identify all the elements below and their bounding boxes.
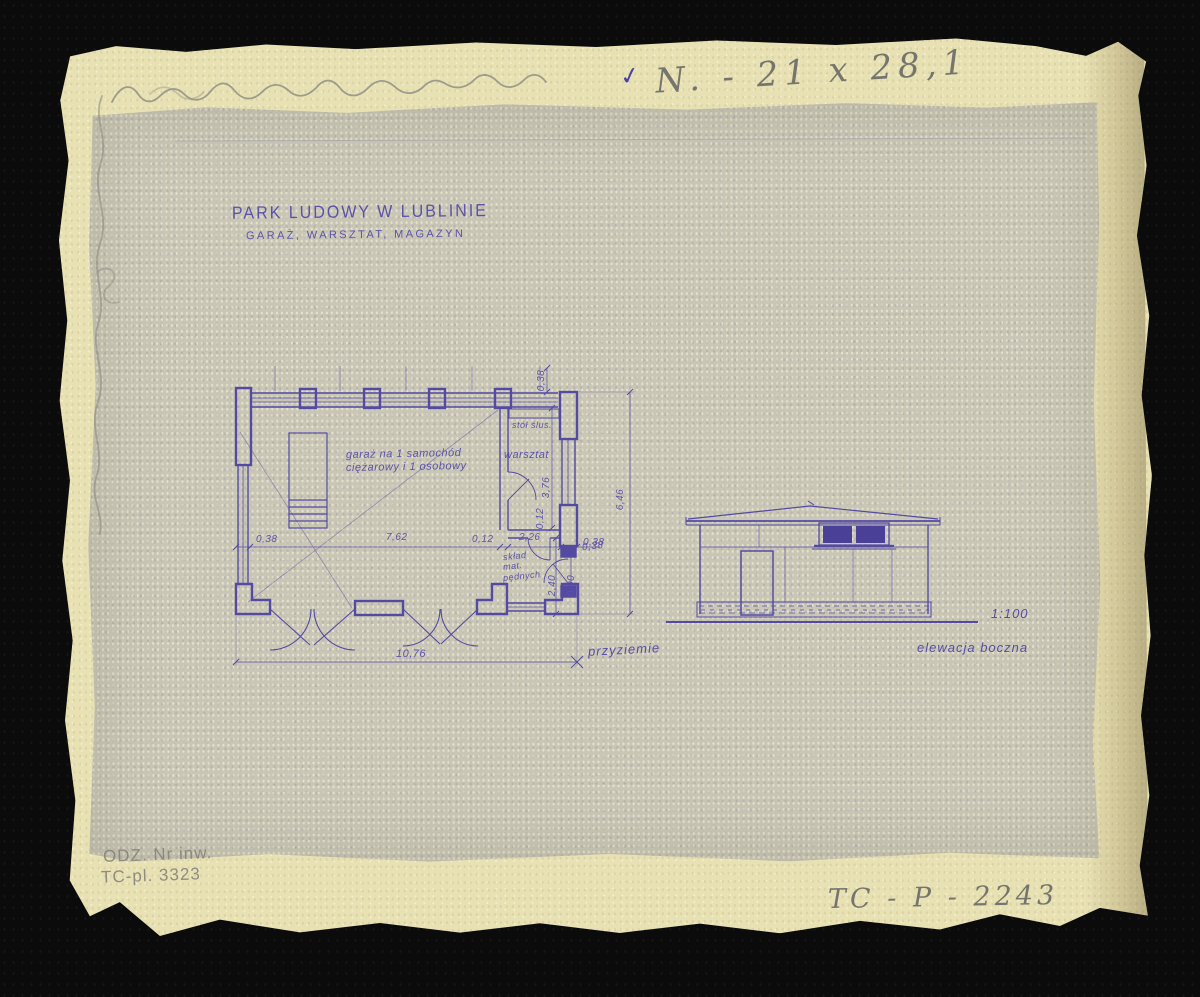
scan-background: ✓ N. - 21 x 28,1 PARK LUDOWY W LUBLINIE … — [0, 0, 1200, 997]
blueprint-sheet — [87, 102, 1106, 866]
